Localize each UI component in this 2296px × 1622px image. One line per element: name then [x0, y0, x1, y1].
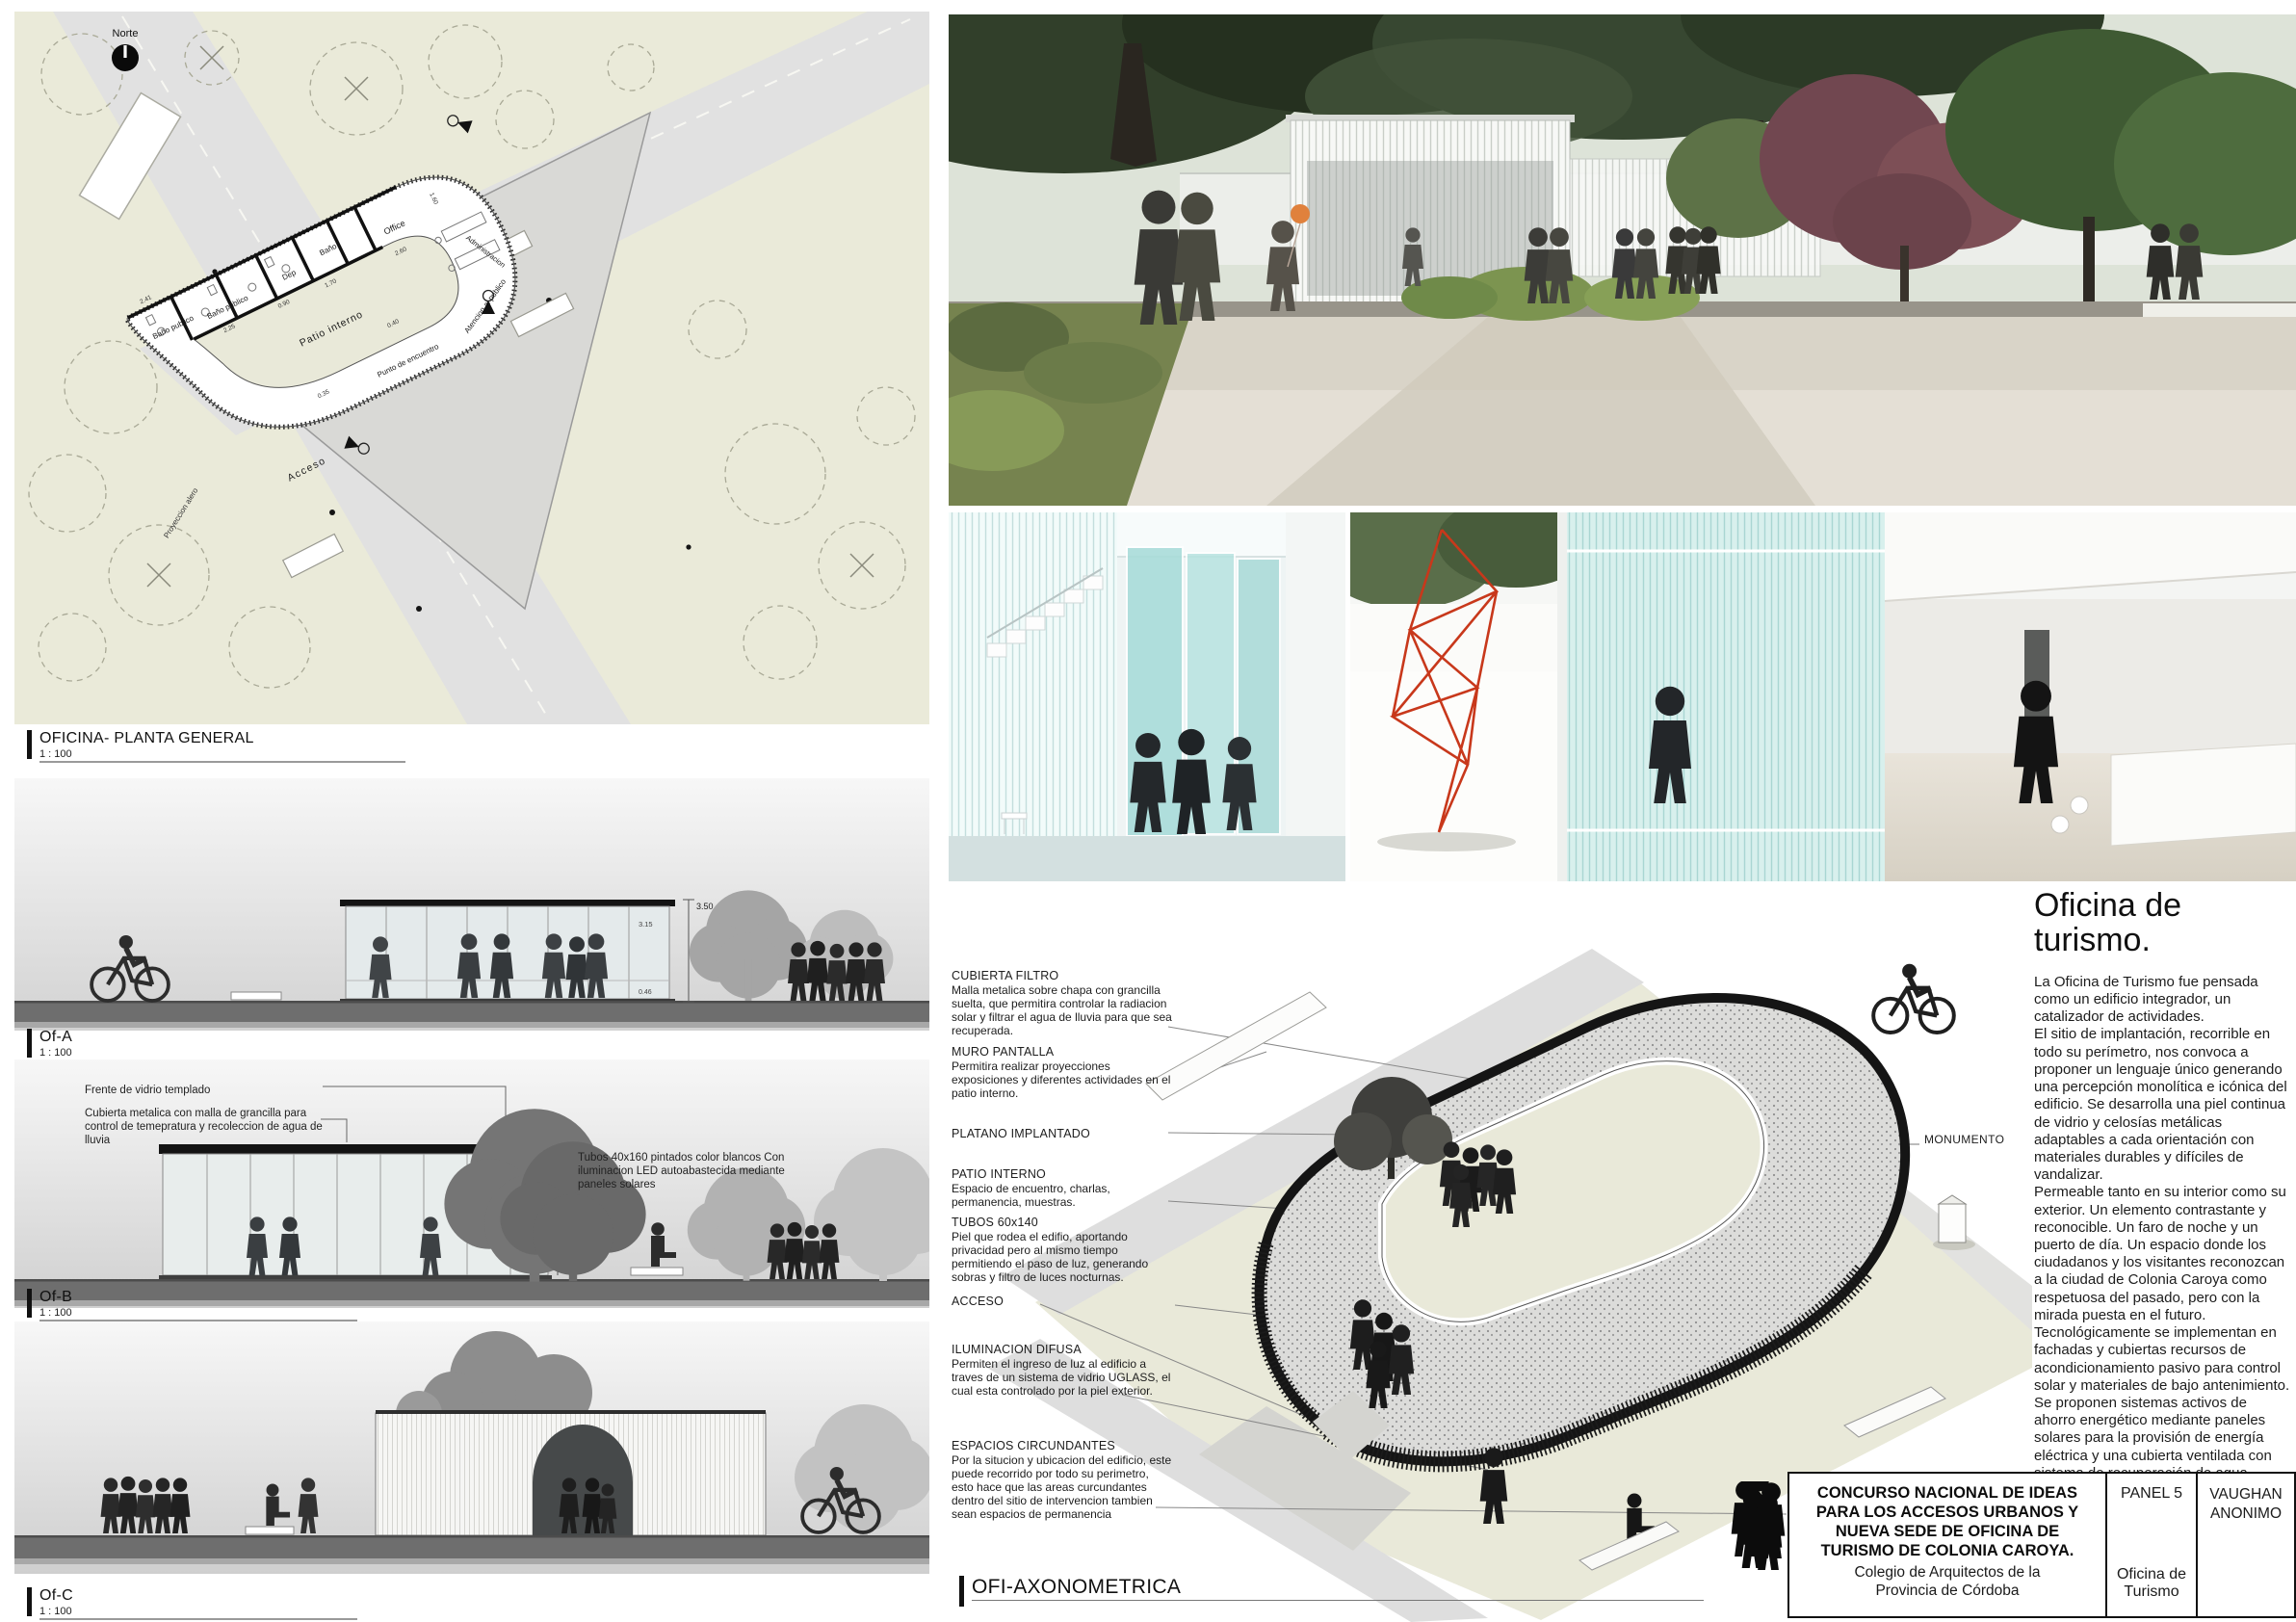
callout-iluminacion: ILUMINACION DIFUSA Permiten el ingreso d…	[952, 1343, 1173, 1399]
slatted-glass-wall	[1567, 512, 1885, 881]
description-paragraph: Permeable tanto en su interior como su e…	[2034, 1184, 2290, 1324]
ground-band	[14, 1001, 929, 1022]
title-block-main-cell: CONCURSO NACIONAL DE IDEAS PARA LOS ACCE…	[1789, 1474, 2107, 1616]
ground-band	[14, 1535, 929, 1558]
callout-title: PLATANO IMPLANTADO	[952, 1127, 1173, 1140]
chair	[2071, 797, 2088, 814]
cyclist-silhouette	[1873, 964, 1954, 1033]
callout-title: CUBIERTA FILTRO	[952, 969, 1173, 982]
panel-subject-line1: Oficina de	[2117, 1566, 2186, 1583]
label-tick	[27, 730, 32, 759]
description-title-line2: turismo.	[2034, 922, 2151, 958]
panel-subject: Oficina de Turismo	[2111, 1566, 2192, 1601]
callout-title: ILUMINACION DIFUSA	[952, 1343, 1173, 1356]
bench	[631, 1268, 683, 1275]
svg-text:3.15: 3.15	[639, 920, 653, 929]
label-tick	[959, 1576, 964, 1607]
slatted-glass-wall	[949, 512, 1117, 840]
description-column: Oficina de turismo. La Oficina de Turism…	[2034, 888, 2290, 1500]
callout-espacios: ESPACIOS CIRCUNDANTES Por la situcion y …	[952, 1439, 1173, 1522]
planter-edge	[2143, 303, 2296, 317]
section-scale: 1 : 100	[39, 1606, 357, 1617]
description-title: Oficina de turismo.	[2034, 888, 2290, 958]
description-paragraph: La Oficina de Turismo fue pensada como u…	[2034, 974, 2290, 1027]
chair	[2051, 816, 2069, 833]
section-of-a-title: Of-A 1 : 100	[27, 1029, 357, 1061]
plan-scale: 1 : 100	[39, 748, 405, 760]
callout-title: ESPACIOS CIRCUNDANTES	[952, 1439, 1173, 1452]
callout-body: Espacio de encuentro, charlas, permanenc…	[952, 1183, 1173, 1210]
axon-title-text: OFI-AXONOMETRICA	[972, 1576, 1704, 1599]
organizer-line2: Provincia de Córdoba	[1875, 1583, 2019, 1599]
section-title-text: Of-A	[39, 1029, 357, 1046]
label-tick	[27, 1587, 32, 1616]
callout-title: MURO PANTALLA	[952, 1045, 1173, 1059]
north-arrow-icon: Norte	[112, 28, 139, 71]
section-scale: 1 : 100	[39, 1047, 357, 1059]
callout-body: Malla metalica sobre chapa con grancilla…	[952, 984, 1173, 1038]
exterior-render	[949, 14, 2296, 506]
floor	[949, 836, 1345, 881]
note-roof: Cubierta metalica con malla de grancilla…	[85, 1108, 330, 1147]
organizer-line1: Colegio de Arquitectos de la	[1854, 1564, 2040, 1581]
callout-cubierta-filtro: CUBIERTA FILTRO Malla metalica sobre cha…	[952, 969, 1173, 1038]
callout-tubos: TUBOS 60x140 Piel que rodea el edifio, a…	[952, 1216, 1173, 1285]
section-of-a-drawing: 3.50 3.15 0.46	[14, 778, 929, 1031]
section-title-text: Of-B	[39, 1289, 357, 1306]
svg-text:3.50: 3.50	[696, 902, 714, 911]
callout-title: ACCESO	[952, 1295, 1173, 1308]
office-interior	[1885, 512, 2296, 881]
wall-column	[1286, 512, 1345, 881]
people-group-icon	[1730, 1481, 1786, 1570]
note-tubes: Tubos 40x160 pintados color blancos Con …	[578, 1152, 809, 1191]
organizer: Colegio de Arquitectos de la Provincia d…	[1797, 1563, 2098, 1601]
callout-acceso: ACCESO	[952, 1295, 1173, 1310]
callout-body: Por la situcion y ubicacion del edificio…	[952, 1454, 1173, 1522]
interior-render-left	[949, 512, 1345, 881]
label-tick	[27, 1289, 32, 1318]
title-block-author-cell: VAUGHAN ANONIMO	[2198, 1474, 2294, 1616]
arch-opening	[533, 1425, 633, 1535]
title-block: CONCURSO NACIONAL DE IDEAS PARA LOS ACCE…	[1787, 1472, 2296, 1618]
callout-patio-interno: PATIO INTERNO Espacio de encuentro, char…	[952, 1167, 1173, 1210]
section-of-b-title: Of-B 1 : 100	[27, 1289, 357, 1321]
title-block-panel-cell: PANEL 5 Oficina de Turismo	[2107, 1474, 2198, 1616]
balloon	[1291, 204, 1310, 223]
callout-body: Permitira realizar proyecciones exposici…	[952, 1060, 1173, 1101]
mullion	[1557, 512, 1567, 881]
plan-title: OFICINA- PLANTA GENERAL 1 : 100	[27, 730, 405, 763]
screen-wall	[1146, 992, 1326, 1100]
description-paragraph: El sitio de implantación, recorrible en …	[2034, 1026, 2290, 1184]
callout-title: TUBOS 60x140	[952, 1216, 1173, 1229]
section-of-c-title: Of-C 1 : 100	[27, 1587, 357, 1620]
callout-muro-pantalla: MURO PANTALLA Permitira realizar proyecc…	[952, 1045, 1173, 1101]
author-line1: VAUGHAN	[2209, 1486, 2283, 1503]
note-glass: Frente de vidrio templado	[85, 1085, 287, 1098]
monument	[1933, 1195, 1975, 1250]
section-title-text: Of-C	[39, 1587, 357, 1605]
callout-body: Piel que rodea el edifio, aportando priv…	[952, 1231, 1173, 1285]
axon-title: OFI-AXONOMETRICA	[959, 1576, 1704, 1607]
svg-text:0.46: 0.46	[639, 989, 652, 996]
interior-render-right	[1350, 512, 2296, 881]
monument-label: MONUMENTO	[1924, 1133, 2004, 1146]
plan-title-text: OFICINA- PLANTA GENERAL	[39, 730, 405, 747]
north-label: Norte	[113, 28, 139, 39]
description-title-line1: Oficina de	[2034, 887, 2181, 924]
callout-title: PATIO INTERNO	[952, 1167, 1173, 1181]
reception-counter	[2111, 744, 2296, 846]
callout-body: Permiten el ingreso de luz al edificio a…	[952, 1358, 1173, 1399]
callout-platano: PLATANO IMPLANTADO	[952, 1127, 1173, 1142]
site-plan-drawing: Norte Baño publico	[14, 12, 929, 724]
section-of-c-drawing	[14, 1321, 929, 1574]
bench	[231, 992, 281, 1000]
competition-panel: Norte Baño publico	[0, 0, 2296, 1622]
panel-subject-line2: Turismo	[2124, 1583, 2179, 1600]
panel-number: PANEL 5	[2111, 1485, 2192, 1503]
label-tick	[27, 1029, 32, 1058]
competition-title: CONCURSO NACIONAL DE IDEAS PARA LOS ACCE…	[1797, 1483, 2098, 1561]
section-scale: 1 : 100	[39, 1307, 357, 1319]
bench	[246, 1527, 294, 1534]
author-line2: ANONIMO	[2210, 1505, 2282, 1522]
